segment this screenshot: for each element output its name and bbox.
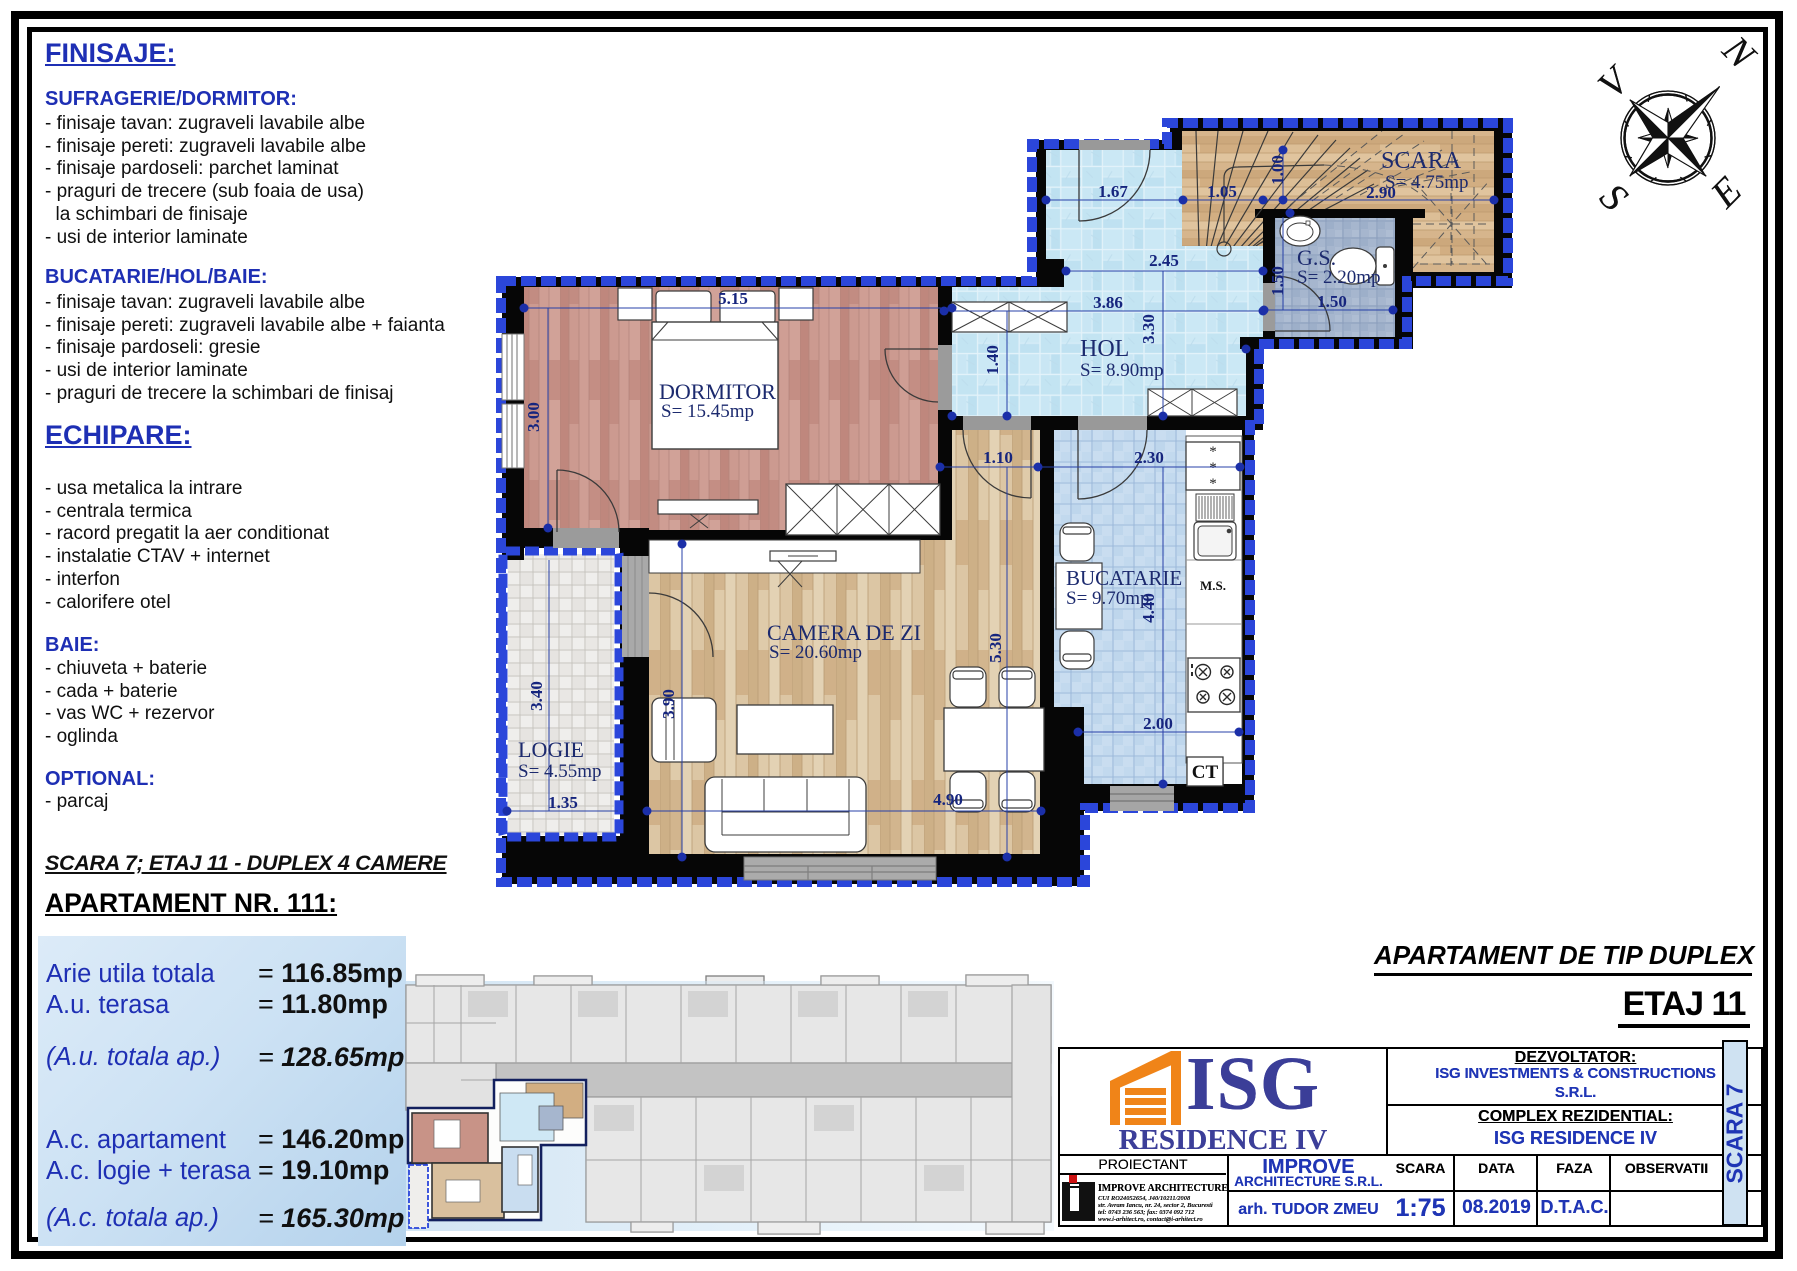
- svg-text:S= 20.60mp: S= 20.60mp: [769, 642, 862, 663]
- svg-text:2.00: 2.00: [1143, 714, 1173, 733]
- svg-text:2.30: 2.30: [1134, 448, 1164, 467]
- svg-text:1.50: 1.50: [1317, 292, 1347, 311]
- svg-text:1.05: 1.05: [1207, 182, 1237, 201]
- svg-text:3.90: 3.90: [659, 689, 678, 719]
- svg-text:5.30: 5.30: [986, 633, 1005, 663]
- svg-text:E: E: [1702, 169, 1750, 217]
- svg-text:1.40: 1.40: [983, 345, 1002, 375]
- svg-text:2.45: 2.45: [1149, 251, 1179, 270]
- svg-text:5.15: 5.15: [718, 289, 748, 308]
- svg-text:BUCATARIE: BUCATARIE: [1066, 566, 1182, 590]
- svg-text:S= 9.70mp: S= 9.70mp: [1066, 588, 1150, 609]
- svg-text:N: N: [1714, 27, 1765, 78]
- svg-text:*: *: [1209, 476, 1217, 492]
- svg-text:LOGIE: LOGIE: [518, 737, 584, 762]
- svg-text:S= 8.90mp: S= 8.90mp: [1080, 360, 1164, 381]
- svg-text:*: *: [1209, 460, 1217, 476]
- svg-text:3.86: 3.86: [1093, 293, 1123, 312]
- svg-text:HOL: HOL: [1080, 336, 1129, 362]
- svg-text:1.50: 1.50: [1268, 266, 1287, 296]
- svg-text:S= 15.45mp: S= 15.45mp: [661, 401, 754, 422]
- svg-text:3.40: 3.40: [527, 681, 546, 711]
- svg-text:1.00: 1.00: [1268, 155, 1287, 185]
- svg-text:1.10: 1.10: [983, 448, 1013, 467]
- svg-text:4.90: 4.90: [933, 790, 963, 809]
- svg-text:S= 4.75mp: S= 4.75mp: [1385, 172, 1469, 193]
- svg-text:CT: CT: [1192, 762, 1219, 783]
- svg-text:M.S.: M.S.: [1200, 578, 1226, 593]
- svg-text:3.30: 3.30: [1139, 314, 1158, 344]
- svg-text:SCARA: SCARA: [1381, 148, 1462, 174]
- svg-text:V: V: [1590, 57, 1640, 107]
- svg-text:*: *: [1209, 444, 1217, 460]
- svg-text:S= 4.55mp: S= 4.55mp: [518, 761, 602, 782]
- svg-text:1.35: 1.35: [548, 793, 578, 812]
- svg-text:S: S: [1592, 175, 1636, 219]
- svg-text:S= 2.20mp: S= 2.20mp: [1297, 267, 1381, 288]
- svg-text:1.67: 1.67: [1098, 182, 1128, 201]
- svg-text:3.00: 3.00: [524, 402, 543, 432]
